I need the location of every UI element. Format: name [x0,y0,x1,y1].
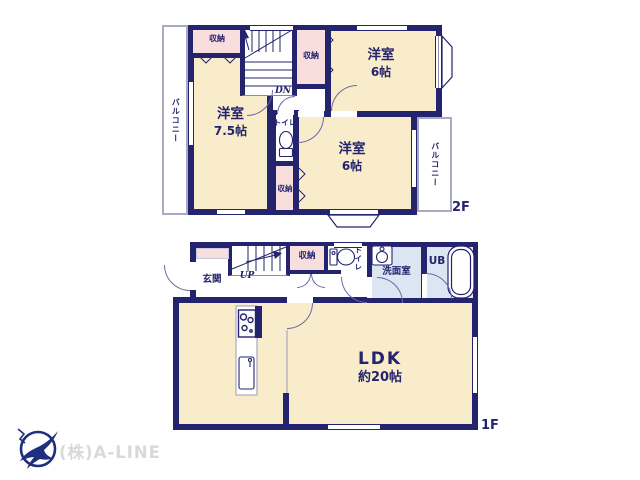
door-arc-entrance-1f [164,265,190,291]
window-ldk-right-1f [472,337,478,393]
window-top-stairs-2f [250,25,293,31]
window-bottom-room75-2f [217,209,245,215]
ldk-name: LDK [300,348,460,370]
closet-bottom-label: 収納 [271,184,299,194]
door-gap-room6a-2f [331,111,357,117]
shoe-cabinet-1f [196,248,229,259]
ldk-size: 約20帖 [300,370,460,387]
balcony-right-label: バルコニー [429,142,439,187]
room6a-label: 洋室 6帖 [325,47,437,80]
toilet-2f-label: トイレ [271,118,299,128]
stairs-dn-label: DN [270,86,296,98]
room6a-size: 6帖 [325,65,437,81]
room75-size: 7.5帖 [188,124,273,140]
window-ldk-bottom-1f [328,424,380,430]
window-top-room6a-2f [357,25,407,31]
floor-plan-canvas: バルコニー バルコニー [0,0,640,480]
door-gap-washroom-1f [367,277,372,298]
stairs-up-label: UP [234,271,260,283]
company-logo-icon [18,429,58,469]
room75-label: 洋室 7.5帖 [188,106,273,139]
floor2-label: 2F [452,200,476,217]
entrance-label: 玄関 [192,274,232,286]
room6a-name: 洋室 [325,47,437,65]
floor1-label: 1F [481,418,505,435]
room75-name: 洋室 [188,106,273,124]
window-right-room6b-2f [411,130,417,187]
closet-topleft-label: 収納 [188,34,246,44]
balcony-left-label: バルコニー [170,98,180,143]
bay-window-bottom-2f [328,215,379,227]
closet-1f-label: 収納 [286,251,328,262]
room6b-label: 洋室 6帖 [293,141,411,174]
ldk-label: LDK 約20帖 [300,348,460,387]
toilet-1f-label: トイレ [353,245,363,272]
ub-label: UB [417,255,457,269]
bay-window-right-2f [442,36,452,88]
balcony-left-2f: バルコニー [162,25,188,215]
room6b-name: 洋室 [293,141,411,159]
window-bottom-bay-2f [330,209,378,215]
room6b-size: 6帖 [293,159,411,175]
company-name: (株)A-LINE [59,439,161,463]
balcony-right-2f: バルコニー [417,117,452,212]
